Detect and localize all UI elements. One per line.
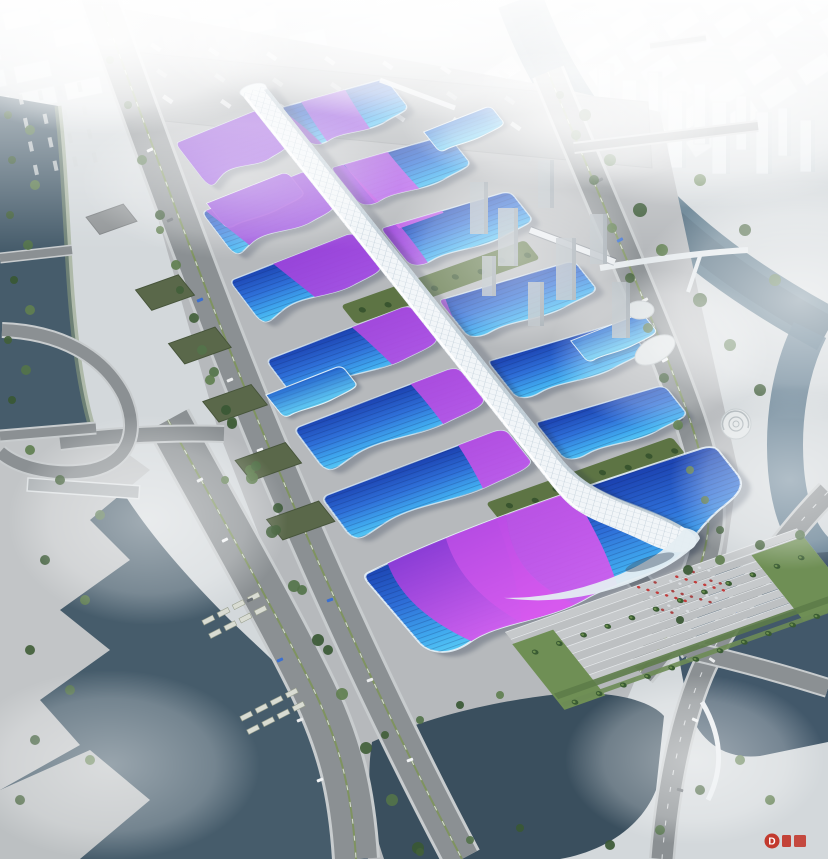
- tree: [516, 824, 524, 832]
- watermark-glyph: [782, 835, 791, 847]
- tree: [360, 742, 372, 754]
- tree: [25, 305, 35, 315]
- tree: [496, 691, 504, 699]
- tree: [21, 365, 31, 375]
- tree: [683, 565, 693, 575]
- tree: [466, 836, 474, 844]
- tree: [227, 417, 237, 427]
- tree: [189, 313, 199, 323]
- aerial-rendering: Aerial architectural rendering of a larg…: [0, 0, 828, 859]
- tree: [25, 645, 35, 655]
- tree: [416, 716, 424, 724]
- tree: [715, 555, 725, 565]
- tree: [312, 634, 324, 646]
- tree: [297, 585, 307, 595]
- tree: [205, 375, 215, 385]
- tree: [336, 688, 348, 700]
- tree: [4, 336, 12, 344]
- tree: [386, 794, 398, 806]
- tree: [25, 445, 35, 455]
- tree: [221, 405, 231, 415]
- watermark-logo-letter: D: [768, 837, 775, 848]
- tree: [8, 396, 16, 404]
- tree: [176, 286, 184, 294]
- tree: [605, 840, 615, 850]
- tree: [323, 645, 333, 655]
- tree: [416, 848, 424, 856]
- watermark-glyph: [794, 835, 806, 847]
- watermark: D: [765, 834, 807, 849]
- tree: [10, 276, 18, 284]
- tree: [456, 701, 464, 709]
- tree: [197, 345, 207, 355]
- tree: [381, 731, 389, 739]
- tree: [171, 260, 181, 270]
- tree: [676, 616, 684, 624]
